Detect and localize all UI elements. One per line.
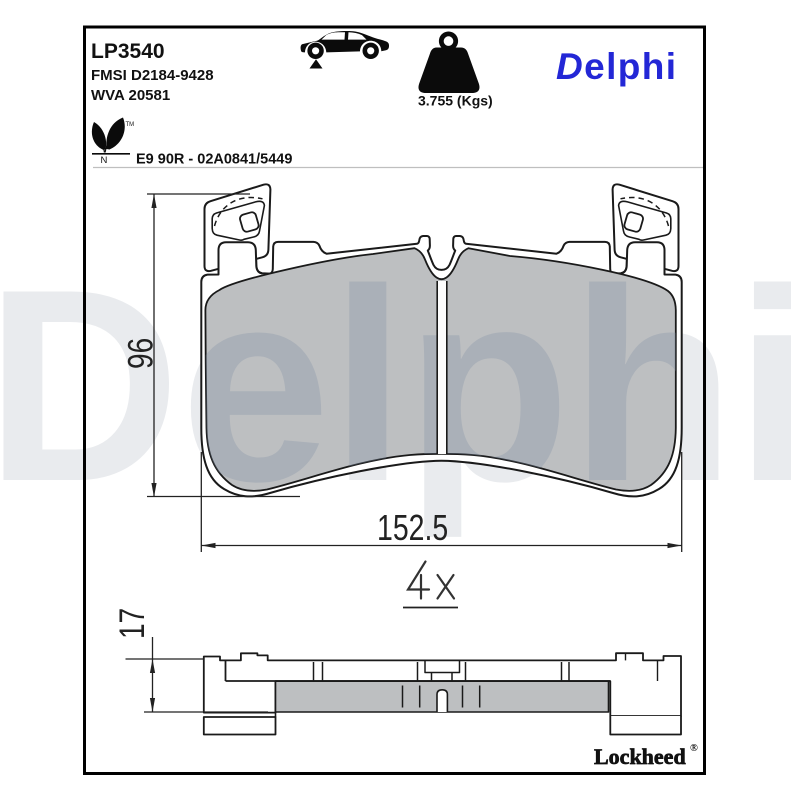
- svg-text:N: N: [101, 155, 108, 166]
- svg-text:Lockheed: Lockheed: [594, 744, 686, 769]
- svg-text:152.5: 152.5: [377, 507, 448, 548]
- svg-text:®: ®: [690, 743, 698, 754]
- svg-text:Delphi: Delphi: [556, 46, 676, 87]
- svg-text:LP3540: LP3540: [91, 40, 165, 63]
- svg-text:3.755 (Kgs): 3.755 (Kgs): [418, 93, 493, 109]
- svg-text:17: 17: [112, 608, 152, 639]
- svg-text:96: 96: [120, 338, 160, 369]
- svg-text:FMSI D2184-9428: FMSI D2184-9428: [91, 67, 214, 84]
- svg-text:TM: TM: [126, 122, 135, 128]
- svg-text:E9 90R - 02A0841/5449: E9 90R - 02A0841/5449: [136, 152, 292, 168]
- svg-text:WVA 20581: WVA 20581: [91, 87, 170, 104]
